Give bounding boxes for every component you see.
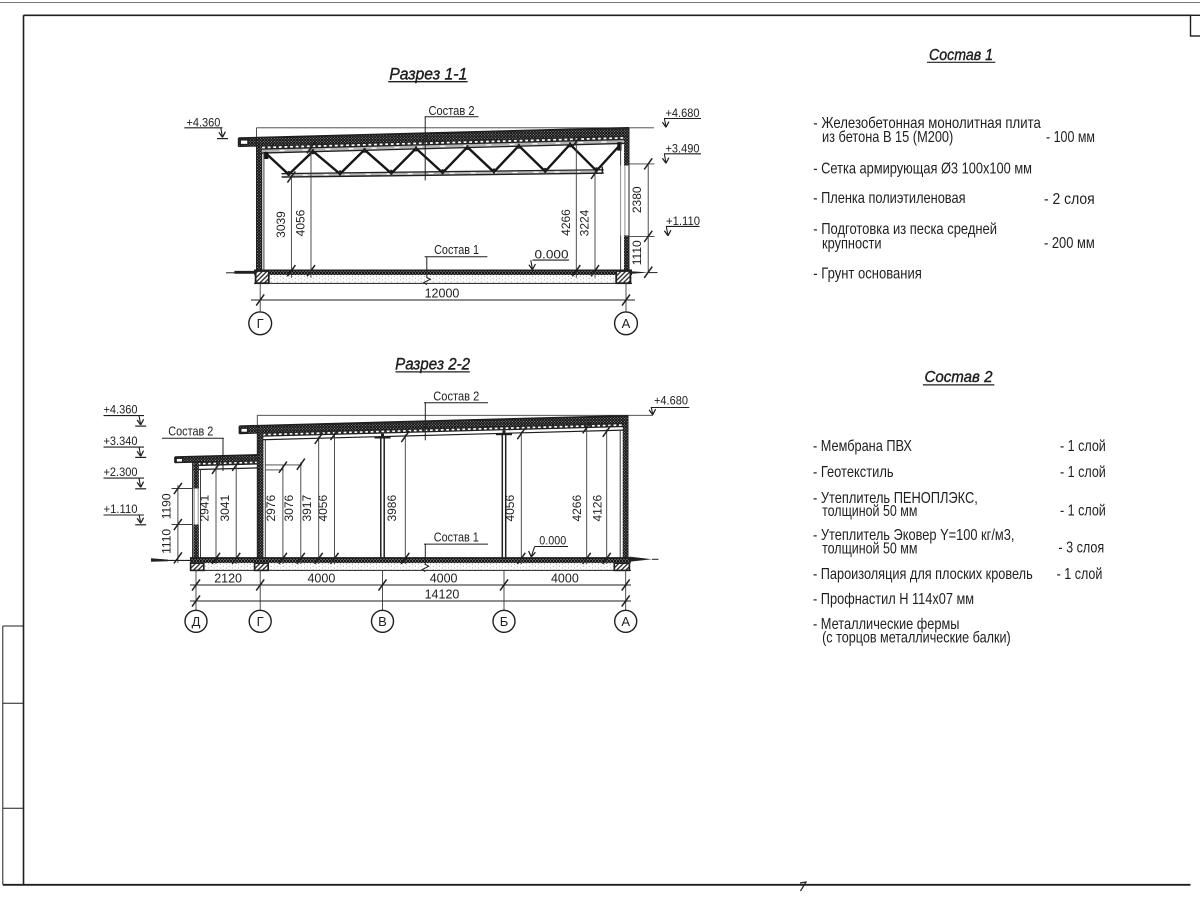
svg-text:2941: 2941 — [198, 495, 212, 522]
svg-text:- 100 мм: - 100 мм — [1046, 129, 1095, 146]
svg-text:В: В — [378, 614, 387, 629]
svg-text:3917: 3917 — [300, 495, 314, 522]
svg-text:Д: Д — [192, 614, 201, 629]
svg-text:Состав 2: Состав 2 — [433, 390, 479, 404]
svg-text:Г: Г — [257, 316, 264, 331]
svg-text:- Профнастил Н 114х07 мм: - Профнастил Н 114х07 мм — [813, 591, 974, 608]
svg-text:2380: 2380 — [630, 186, 644, 213]
svg-text:3041: 3041 — [218, 495, 232, 522]
svg-text:4056: 4056 — [316, 495, 330, 522]
svg-text:4056: 4056 — [293, 209, 307, 236]
svg-text:4266: 4266 — [559, 209, 573, 236]
svg-text:+4.360: +4.360 — [186, 115, 220, 129]
svg-text:крупности: крупности — [822, 236, 882, 253]
svg-text:- 2 слоя: - 2 слоя — [1044, 191, 1095, 208]
svg-text:12000: 12000 — [425, 287, 460, 301]
svg-text:толщиной 50 мм: толщиной 50 мм — [822, 503, 917, 520]
svg-text:4000: 4000 — [430, 572, 458, 586]
svg-text:Г: Г — [257, 614, 264, 629]
svg-text:3076: 3076 — [282, 495, 296, 522]
svg-text:3224: 3224 — [578, 209, 592, 236]
svg-text:- Сетка армирующая Ø3 100х100: - Сетка армирующая Ø3 100х100 мм — [813, 160, 1032, 177]
svg-text:Состав 1: Состав 1 — [929, 47, 993, 64]
svg-text:2120: 2120 — [214, 572, 242, 586]
svg-text:Состав 1: Состав 1 — [434, 243, 479, 257]
svg-text:4000: 4000 — [551, 572, 579, 586]
svg-text:толщиной 50 мм: толщиной 50 мм — [822, 540, 917, 557]
svg-text:4266: 4266 — [570, 495, 584, 522]
svg-text:+3.340: +3.340 — [104, 434, 138, 448]
svg-text:- Мембрана ПВХ: - Мембрана ПВХ — [813, 438, 912, 455]
svg-text:Состав 2: Состав 2 — [429, 104, 475, 118]
svg-text:- 1 слой: - 1 слой — [1060, 464, 1106, 481]
svg-text:из бетона В 15 (М200): из бетона В 15 (М200) — [822, 129, 953, 146]
svg-text:3039: 3039 — [274, 211, 288, 238]
svg-text:+1.110: +1.110 — [104, 502, 138, 516]
svg-text:- Геотекстиль: - Геотекстиль — [813, 464, 894, 481]
svg-text:- 1 слой: - 1 слой — [1060, 438, 1106, 455]
svg-text:+4.680: +4.680 — [654, 394, 688, 408]
svg-text:1190: 1190 — [159, 493, 173, 519]
svg-text:2976: 2976 — [264, 495, 278, 522]
svg-text:А: А — [622, 316, 631, 331]
svg-text:- 200 мм: - 200 мм — [1044, 235, 1095, 252]
svg-text:14120: 14120 — [425, 587, 460, 601]
svg-text:0.000: 0.000 — [535, 247, 569, 261]
svg-text:- 3 слоя: - 3 слоя — [1058, 540, 1104, 557]
svg-text:А: А — [621, 614, 630, 629]
svg-text:+4.360: +4.360 — [104, 403, 138, 417]
svg-text:0.000: 0.000 — [539, 534, 566, 548]
svg-text:- Пленка полиэтиленовая: - Пленка полиэтиленовая — [813, 190, 965, 207]
svg-text:4000: 4000 — [307, 572, 335, 586]
svg-text:+4.680: +4.680 — [666, 106, 700, 120]
svg-text:- 1 слой: - 1 слой — [1060, 502, 1106, 519]
svg-text:Разрез 2-2: Разрез 2-2 — [395, 355, 470, 373]
svg-text:+2.300: +2.300 — [104, 465, 138, 479]
svg-text:4126: 4126 — [590, 495, 604, 522]
svg-text:3986: 3986 — [385, 495, 399, 522]
svg-text:- Пароизоляция для плоских кро: - Пароизоляция для плоских кровель — [813, 566, 1033, 583]
svg-text:- 1 слой: - 1 слой — [1057, 566, 1103, 583]
svg-text:+3.490: +3.490 — [666, 141, 700, 155]
svg-text:4056: 4056 — [503, 495, 517, 522]
svg-text:- Грунт основания: - Грунт основания — [813, 265, 922, 282]
svg-text:(с торцов металлические балки): (с торцов металлические балки) — [822, 629, 1011, 646]
svg-text:1110: 1110 — [159, 529, 173, 554]
svg-text:Состав 2: Состав 2 — [925, 369, 993, 386]
svg-text:Разрез 1-1: Разрез 1-1 — [389, 65, 467, 83]
svg-text:Состав 1: Состав 1 — [434, 531, 479, 545]
svg-text:Состав 2: Состав 2 — [168, 425, 213, 439]
svg-text:1110: 1110 — [630, 240, 644, 265]
svg-text:Б: Б — [500, 614, 509, 629]
